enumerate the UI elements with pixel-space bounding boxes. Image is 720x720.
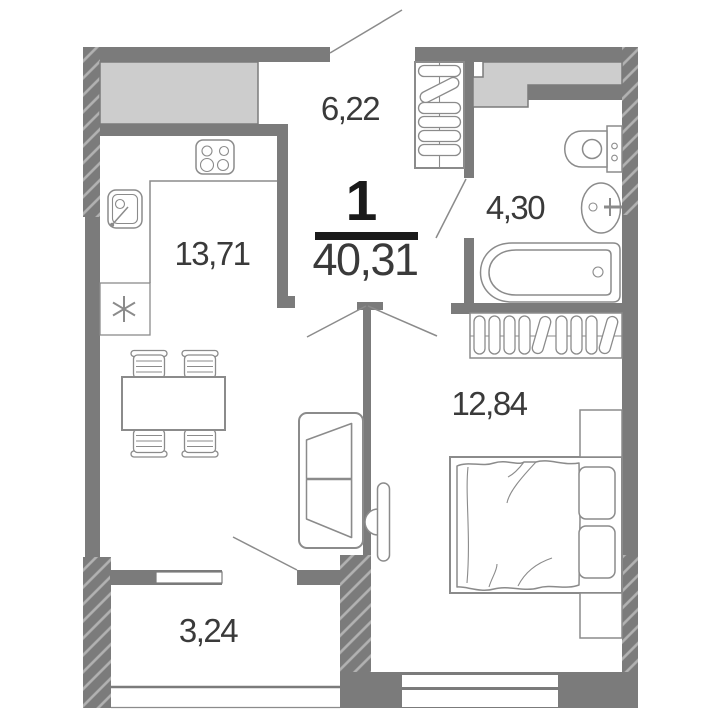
nightstand-bottom	[580, 593, 622, 638]
sofa-icon	[299, 413, 363, 548]
wall-kitchen-north-band	[100, 124, 288, 136]
wall-bathroom-north	[528, 85, 622, 100]
pillow	[579, 526, 615, 578]
hallway-closet-icon	[415, 62, 464, 168]
wall-right-top-hatched	[622, 47, 638, 215]
wall-kitchen-hall-partition	[277, 124, 288, 304]
nightstand-top	[580, 410, 622, 457]
kitchen-wardrobe-block	[100, 62, 258, 124]
wall-bathroom-left-lower	[464, 238, 474, 314]
room-label-hallway: 6,22	[295, 92, 405, 125]
wall-right-solid	[622, 215, 638, 555]
toilet-icon	[565, 126, 622, 172]
wall-partition-foot	[277, 296, 295, 308]
wall-top-left	[85, 47, 330, 62]
kitchen-sink-icon	[108, 190, 142, 228]
bed-icon	[450, 457, 622, 593]
room-label-kitchen-living: 13,71	[157, 237, 267, 270]
floorplan: 6,22 13,71 4,30 12,84 3,24 1 40,31	[0, 0, 720, 720]
wall-balcony-divider-hatched	[340, 555, 371, 672]
fridge-icon	[100, 283, 150, 335]
total-area: 40,31	[300, 237, 430, 282]
bathtub-icon	[481, 243, 621, 302]
room-label-bathroom: 4,30	[460, 191, 570, 224]
living-room-window	[156, 572, 222, 583]
dining-table-icon	[122, 377, 225, 430]
chair-icon	[131, 351, 167, 379]
wall-right-bottom-hatched	[622, 555, 638, 675]
bathroom-sink-icon	[582, 183, 623, 233]
wall-left-hatched	[83, 47, 100, 217]
wardrobe-icon	[470, 313, 622, 358]
chair-icon	[182, 351, 218, 379]
chair-icon	[131, 430, 167, 458]
wall-balcony-top-right	[297, 570, 340, 585]
chair-icon	[182, 430, 218, 458]
stove-icon	[196, 140, 234, 174]
bedroom-opening-line-right	[368, 306, 437, 336]
unit-number: 1	[331, 173, 391, 230]
vent-shaft	[473, 62, 622, 107]
room-label-bedroom: 12,84	[434, 387, 544, 420]
room-label-balcony: 3,24	[153, 614, 263, 647]
pillow	[579, 467, 615, 519]
wall-left-solid	[85, 217, 100, 557]
wall-balcony-left-hatched	[83, 557, 111, 708]
bedroom-opening-line-left	[307, 306, 366, 337]
wall-top-right	[415, 47, 638, 62]
bedroom-window	[402, 675, 558, 707]
balcony-railing	[111, 687, 340, 708]
balcony-door-leaf	[233, 537, 297, 570]
entrance-door-leaf	[330, 10, 402, 53]
